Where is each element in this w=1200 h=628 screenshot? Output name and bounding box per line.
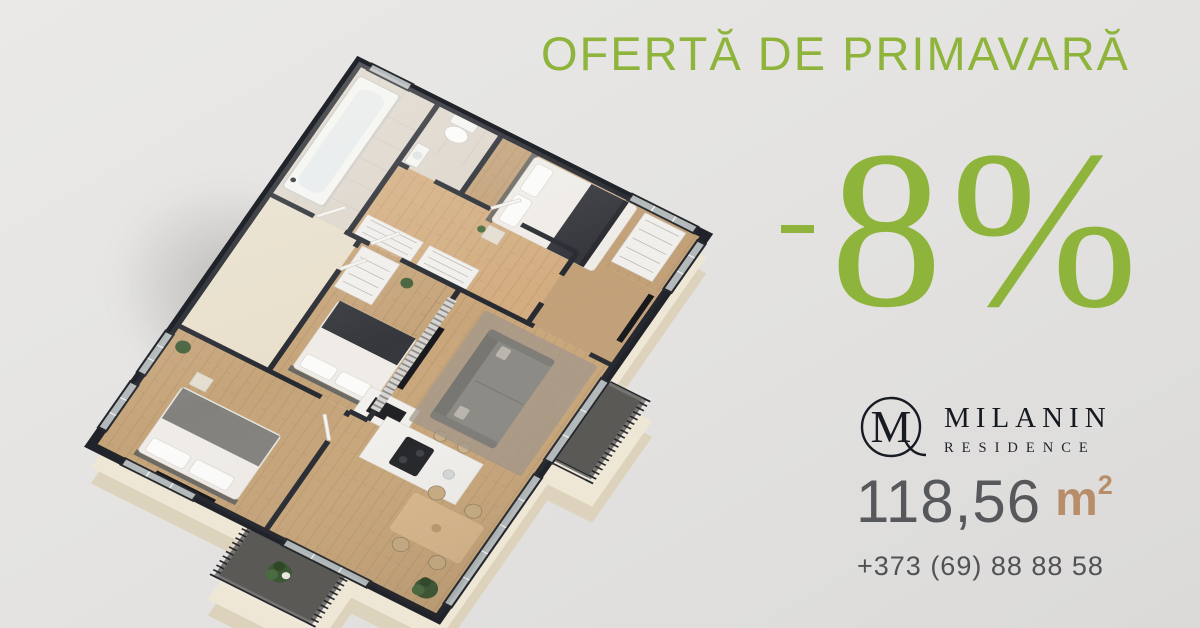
phone-number: +373 (69) 88 88 58: [857, 551, 1104, 582]
brand-subtitle: RESIDENCE: [944, 440, 1112, 457]
minus-sign: -: [781, 225, 814, 233]
svg-text:M: M: [871, 401, 912, 452]
discount-figure: - 8 %: [781, 128, 1138, 331]
apartment-area: 118,56 m2: [856, 472, 1113, 532]
area-unit: m2: [1055, 476, 1113, 524]
area-value: 118,56: [856, 472, 1041, 532]
discount-value: 8: [830, 128, 943, 331]
promo-banner: OFERTĂ DE PRIMAVARĂ - 8 % M MILANIN RESI…: [0, 0, 1200, 628]
percent-sign: %: [951, 128, 1138, 331]
offer-headline: OFERTĂ DE PRIMAVARĂ: [541, 26, 1130, 81]
brand-monogram-icon: M: [853, 390, 931, 468]
brand-name: MILANIN: [944, 402, 1112, 435]
brand-logo: M MILANIN RESIDENCE: [853, 390, 1112, 468]
